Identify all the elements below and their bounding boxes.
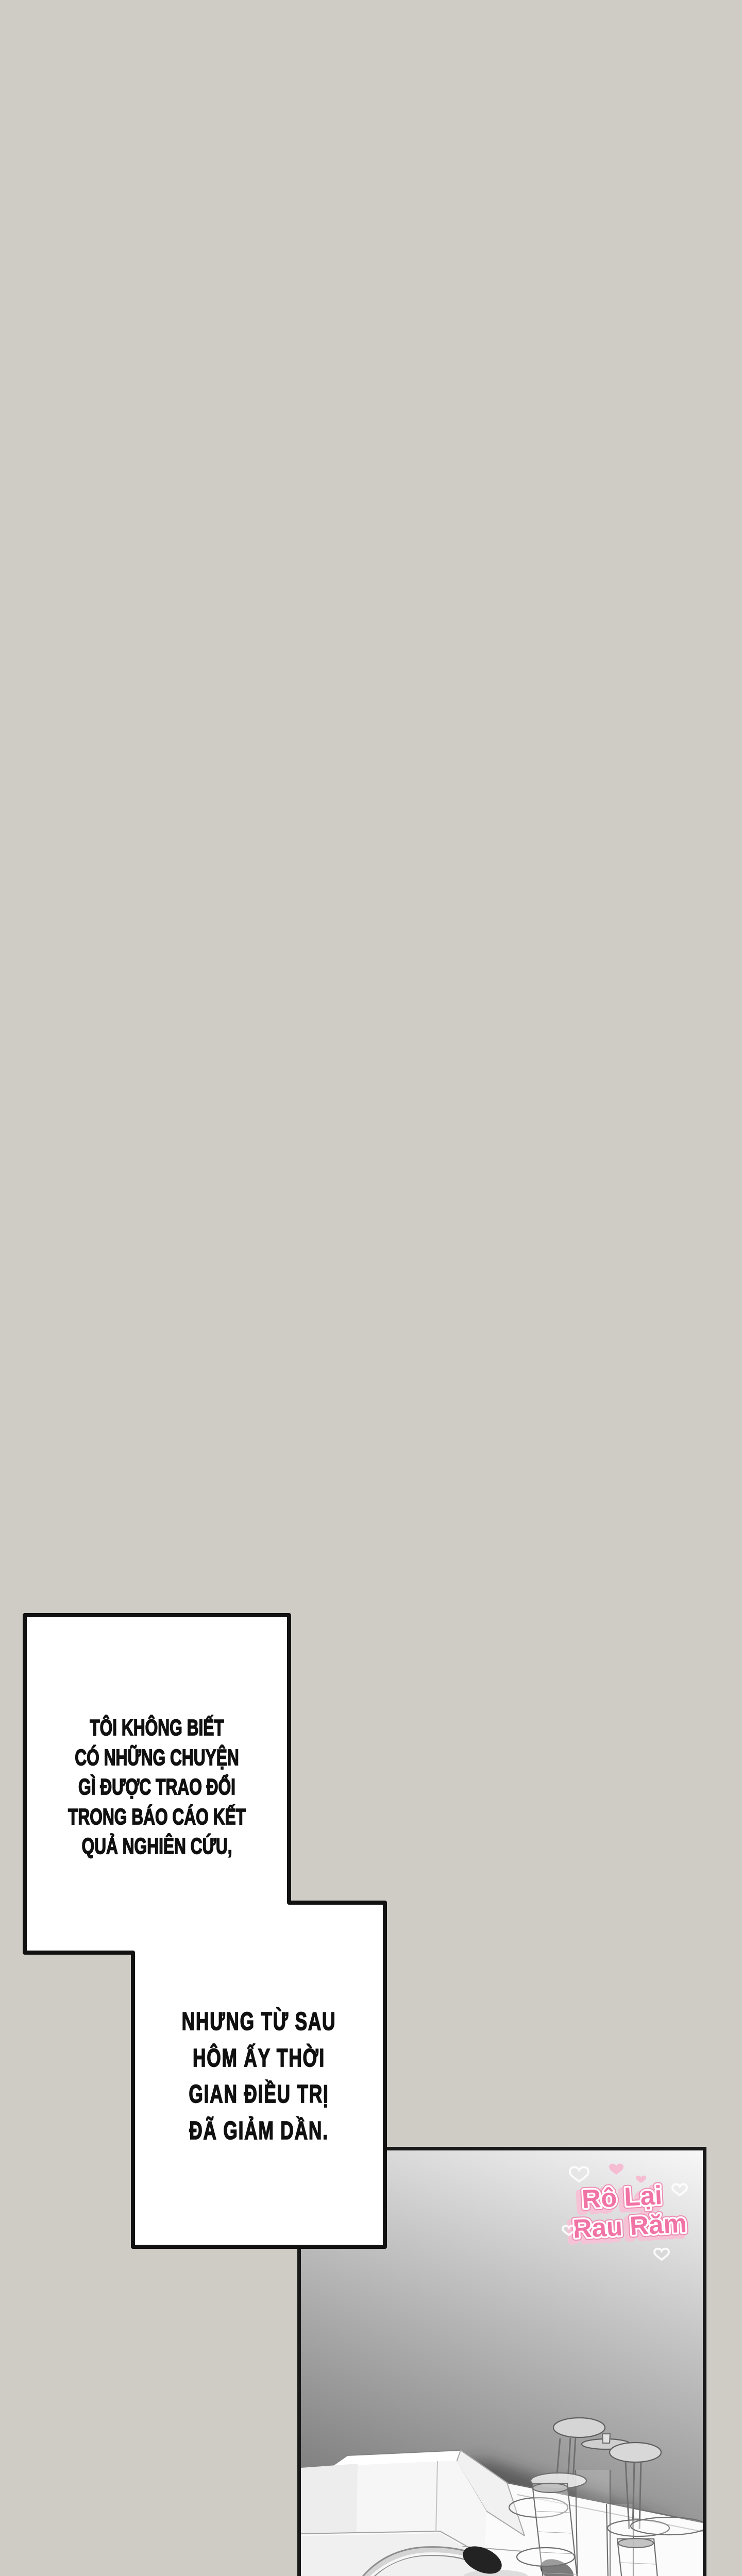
- svg-text:Rô Lại: Rô Lại: [581, 2180, 663, 2214]
- svg-text:Rau Răm: Rau Răm: [572, 2208, 687, 2243]
